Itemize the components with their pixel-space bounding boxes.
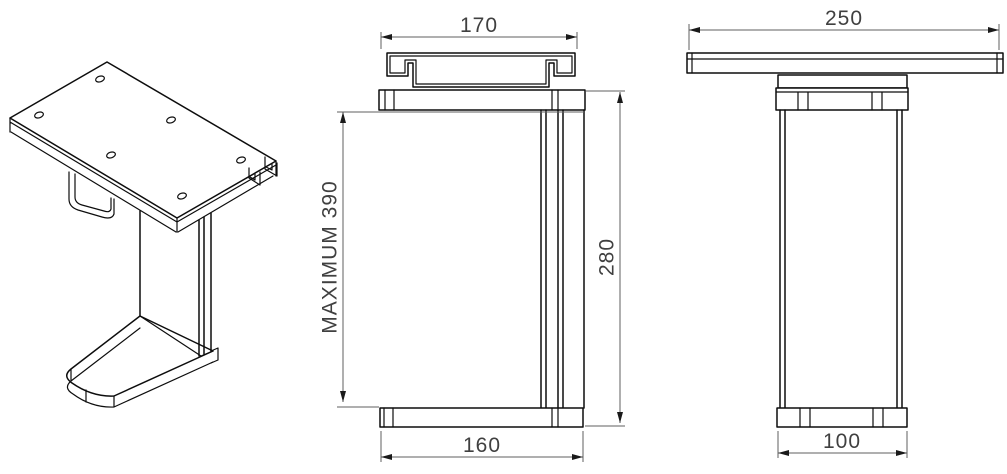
iso-plate-top-face <box>10 62 276 218</box>
dim-250-arrow-right <box>988 27 999 33</box>
dim-side-base-width: 100 <box>778 430 907 458</box>
dim-250-arrow-left <box>689 27 700 33</box>
side-column <box>780 110 902 408</box>
technical-drawing-canvas: 170 MAXIMUM 390 160 280 <box>0 0 1007 474</box>
dim-390-label: MAXIMUM 390 <box>319 180 342 333</box>
iso-top-plate <box>10 62 277 232</box>
drawing-svg: 170 MAXIMUM 390 160 280 <box>0 0 1007 474</box>
iso-foot-end-cap <box>211 348 218 363</box>
dim-overall-height: 280 <box>585 91 625 426</box>
side-view <box>687 53 1003 427</box>
side-top-plate <box>687 53 1003 73</box>
side-column-lines <box>780 110 902 408</box>
dim-100-arrow-right <box>896 450 907 456</box>
side-clamp-bracket <box>776 75 908 110</box>
side-foot-block <box>777 408 907 427</box>
dim-front-base-width: 160 <box>381 431 583 462</box>
dim-100-arrow-left <box>778 450 789 456</box>
iso-bracket <box>69 172 114 218</box>
dim-100-label: 100 <box>823 430 861 453</box>
dim-250-label: 250 <box>825 7 863 30</box>
front-top-plate-body <box>379 90 585 110</box>
side-clamp-block <box>776 88 908 110</box>
dim-390-arrow-bottom <box>340 391 346 402</box>
side-foot-body <box>777 408 907 427</box>
front-top-plate <box>379 90 585 110</box>
dim-390-arrow-top <box>340 112 346 123</box>
front-column <box>541 110 584 408</box>
dim-390-extensions <box>337 112 584 407</box>
dim-160-arrow-left <box>381 454 392 460</box>
dim-280-arrow-bottom <box>617 412 623 423</box>
isometric-view <box>10 62 277 407</box>
front-column-lines <box>541 110 584 408</box>
dim-front-max-height: MAXIMUM 390 <box>319 112 584 407</box>
front-rail-profile <box>387 53 575 87</box>
dim-160-arrow-right <box>572 454 583 460</box>
dim-160-label: 160 <box>463 434 501 457</box>
dim-170-label: 170 <box>460 14 498 37</box>
rail-outer-contour <box>387 53 575 87</box>
dim-280-arrow-top <box>617 92 623 103</box>
dim-side-top-width: 250 <box>689 7 999 50</box>
front-foot-plate <box>380 408 583 427</box>
side-bracket-strip <box>778 75 907 88</box>
front-view <box>379 53 585 427</box>
dim-170-arrow-right <box>566 34 577 40</box>
iso-foot <box>67 316 218 407</box>
side-top-plate-body <box>687 53 1003 73</box>
dim-front-top-width: 170 <box>381 14 577 49</box>
dim-170-arrow-left <box>381 34 392 40</box>
dim-280-label: 280 <box>596 238 619 276</box>
